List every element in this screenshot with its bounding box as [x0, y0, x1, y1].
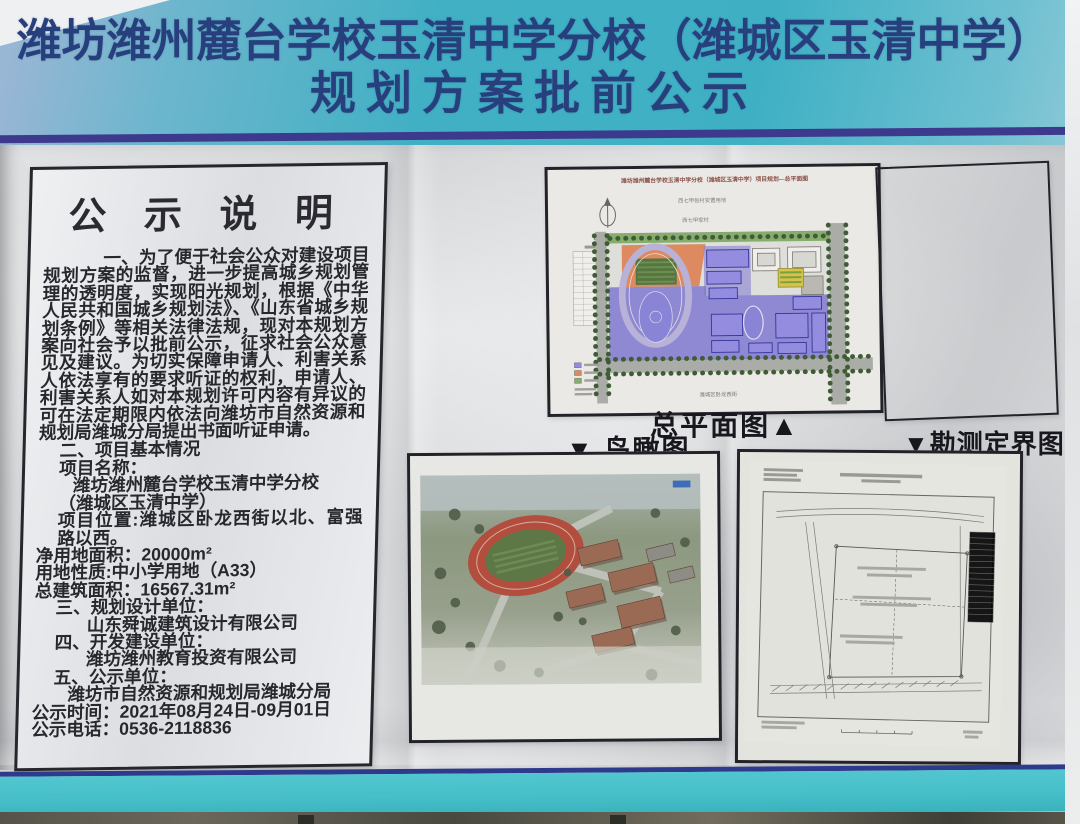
watermark-label [673, 481, 691, 488]
notice-body: 一、为了便于社会公众对建设项目规划方案的监督，进一步提高城乡规划管理的透明度，实… [18, 244, 383, 740]
reserved-empty-box [875, 161, 1059, 421]
notice-board-photo: 潍坊潍州麓台学校玉清中学分校（潍城区玉清中学） 规划方案批前公示 公 示 说 明… [0, 0, 1080, 824]
banner: 潍坊潍州麓台学校玉清中学分校（潍城区玉清中学） 规划方案批前公示 [0, 0, 1080, 146]
building-yellow [778, 268, 804, 287]
aerial-view-sheet [407, 451, 722, 743]
horizon-haze [420, 474, 700, 511]
notice-line: 公示电话：0536-2118836 [31, 717, 357, 739]
notice-line: 一、为了便于社会公众对建设项目规划方案的监督，进一步提高城乡规划管理的透明度，实… [39, 246, 370, 442]
support-post [298, 815, 314, 824]
notice-title: 公 示 说 明 [31, 181, 384, 241]
survey-map-sheet [735, 449, 1023, 765]
notice-line: 项目位置:潍城区卧龙西街以北、富强路以西。 [36, 508, 363, 547]
foreground-haze [421, 646, 701, 685]
banner-stripe [0, 127, 1080, 144]
master-plan-sheet: 潍坊潍州麓台学校玉清中学分校（潍城区玉清中学）项目规划—总平面图 西七甲张村安置… [544, 163, 883, 417]
support-post [610, 815, 626, 824]
small-court-oval [743, 306, 763, 339]
ground-strip [0, 812, 1080, 824]
photo-right-edge [1065, 0, 1080, 824]
aerial-view-image [410, 454, 713, 734]
notice-panel: 公 示 说 明 一、为了便于社会公众对建设项目规划方案的监督，进一步提高城乡规划… [14, 162, 388, 771]
banner-title-line1: 潍坊潍州麓台学校玉清中学分校（潍城区玉清中学） [0, 14, 1068, 68]
banner-title-line2: 规划方案批前公示 [0, 68, 1068, 120]
coordinate-table [968, 532, 996, 623]
banner-title: 潍坊潍州麓台学校玉清中学分校（潍城区玉清中学） 规划方案批前公示 [0, 14, 1068, 120]
survey-map-drawing [738, 452, 1014, 756]
master-plan-drawing: 潍坊潍州麓台学校玉清中学分校（潍城区玉清中学）项目规划—总平面图 西七甲张村安置… [548, 166, 875, 408]
